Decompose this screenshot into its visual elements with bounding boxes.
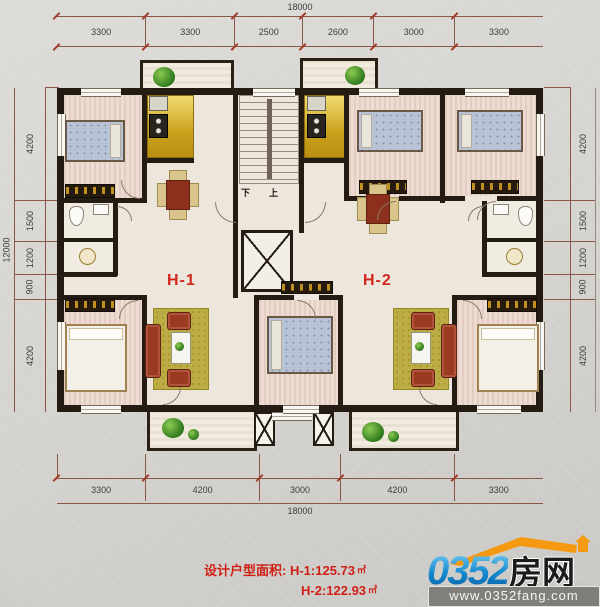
wall	[399, 196, 445, 201]
dimension-value: 4200	[571, 88, 595, 201]
armchair	[411, 369, 435, 387]
plant-icon	[188, 429, 199, 440]
basin-icon	[506, 248, 523, 265]
plant-icon	[175, 342, 184, 351]
plant-icon	[162, 418, 184, 438]
wall	[142, 88, 147, 203]
pillow	[69, 328, 123, 340]
bed	[457, 110, 523, 152]
wardrobe	[281, 281, 333, 294]
chair	[369, 223, 387, 234]
wardrobe	[65, 184, 115, 198]
wall	[57, 272, 117, 277]
dimension-value: 3300	[57, 479, 145, 501]
wall	[254, 295, 259, 412]
balcony	[349, 412, 459, 451]
sofa	[145, 324, 161, 378]
area-caption: 设计户型面积: H-1:125.73㎡ H-2:122.93㎡	[204, 564, 377, 597]
wall	[440, 88, 445, 203]
balcony	[147, 412, 257, 451]
window	[359, 88, 399, 97]
dim-row-bottom: 3300 4200 3000 4200 3300	[57, 478, 543, 501]
plant-icon	[345, 66, 365, 85]
area-unit: ㎡	[368, 585, 377, 595]
dimension-value: 900	[571, 275, 595, 300]
caption-line-h2: H-2:122.93㎡	[301, 584, 377, 597]
window	[81, 88, 121, 97]
site-logo: 0352房网 www.0352fang.com	[427, 534, 600, 607]
h2-area-value: H-2:122.93	[301, 583, 366, 598]
kitchen-sink-icon	[149, 96, 168, 111]
wall	[319, 295, 343, 300]
wall	[57, 198, 145, 203]
dimension-value: 1200	[571, 242, 595, 275]
area-unit: ㎡	[357, 565, 366, 575]
door-arc	[419, 387, 437, 405]
wall	[344, 88, 349, 200]
stairs-down-label: 下	[241, 186, 250, 199]
bed	[357, 110, 423, 152]
logo-text: 0352房网	[427, 551, 575, 591]
pillow	[481, 328, 535, 340]
dimension-value: 1200	[15, 242, 45, 275]
dimension-value: 4200	[145, 479, 258, 501]
window	[283, 405, 319, 414]
pillow	[461, 114, 472, 148]
door-arc	[305, 202, 326, 223]
unit-label-h1: H-1	[167, 272, 196, 290]
sink-icon	[93, 204, 109, 215]
dimension-value: 3300	[454, 479, 543, 501]
dimension-value: 3300	[57, 17, 146, 46]
plant-icon	[388, 431, 399, 442]
dim-left-total: 12000	[0, 88, 14, 412]
floor-plan: 下 上	[57, 88, 543, 412]
bed	[65, 120, 125, 162]
window	[81, 405, 121, 414]
caption-title: 设计户型面积:	[204, 563, 286, 578]
dim-top-total: 18000	[57, 2, 543, 12]
door-arc	[215, 202, 236, 223]
dimension-value: 2500	[235, 17, 303, 46]
window	[477, 405, 521, 414]
wall	[57, 238, 117, 242]
h1-area-value: H-1:125.73	[290, 563, 355, 578]
plant-icon	[153, 67, 175, 87]
armchair	[167, 312, 191, 330]
dimension-value: 4200	[15, 88, 45, 201]
wall	[299, 158, 349, 163]
armchair	[411, 312, 435, 330]
balcony	[300, 58, 378, 91]
door-arc	[163, 387, 181, 405]
wardrobe	[65, 298, 115, 312]
balcony	[140, 60, 234, 91]
dim-col-left: 4200 1500 1200 900 4200	[14, 88, 46, 412]
door-arc	[468, 206, 483, 221]
stove-icon	[307, 114, 326, 138]
bed	[477, 324, 539, 392]
door-arc	[117, 206, 132, 221]
unit-label-h2: H-2	[363, 272, 392, 290]
dimension-value: 2600	[303, 17, 373, 46]
window	[536, 114, 545, 156]
logo-url: www.0352fang.com	[428, 586, 600, 607]
wall	[482, 238, 543, 242]
dim-bottom-total: 18000	[57, 503, 543, 516]
dimension-value: 3300	[455, 17, 543, 46]
basin-icon	[79, 248, 96, 265]
stairs-up-label: 上	[269, 186, 278, 199]
caption-line-h1: 设计户型面积: H-1:125.73㎡	[204, 564, 377, 577]
dim-col-right: 4200 1500 1200 900 4200	[570, 88, 596, 412]
window	[253, 88, 295, 97]
wardrobe	[487, 298, 537, 312]
shaft-icon	[313, 412, 334, 446]
armchair	[167, 369, 191, 387]
floorplan-page: 18000 3300 3300 2500 2600 3000 3300 1200…	[0, 0, 600, 607]
dimension-value: 3000	[374, 17, 455, 46]
dimension-value: 3300	[146, 17, 235, 46]
bed	[267, 316, 333, 374]
dimension-value: 1500	[571, 201, 595, 242]
wall	[254, 295, 294, 300]
wardrobe	[471, 180, 519, 194]
sofa	[441, 324, 457, 378]
wall	[445, 196, 465, 201]
pillow	[361, 114, 372, 148]
kitchen-sink-icon	[307, 96, 326, 111]
stairwell	[239, 94, 299, 184]
dimension-value: 4200	[340, 479, 453, 501]
wall	[338, 295, 343, 412]
pillow	[110, 124, 121, 158]
wall	[142, 158, 194, 163]
pillow	[271, 320, 282, 370]
dining-table	[166, 180, 190, 210]
dimension-value: 3000	[259, 479, 340, 501]
plant-icon	[415, 342, 424, 351]
dimension-value: 900	[15, 275, 45, 300]
dimension-value: 4200	[571, 300, 595, 412]
plant-icon	[362, 422, 384, 442]
wall	[233, 88, 238, 298]
dimension-value: 4200	[15, 300, 45, 412]
chair	[169, 209, 187, 220]
dimension-value: 1500	[15, 201, 45, 242]
dim-row-top: 3300 3300 2500 2600 3000 3300	[57, 16, 543, 47]
wall	[482, 272, 543, 277]
stove-icon	[149, 114, 168, 138]
window	[465, 88, 509, 97]
bed	[65, 324, 127, 392]
